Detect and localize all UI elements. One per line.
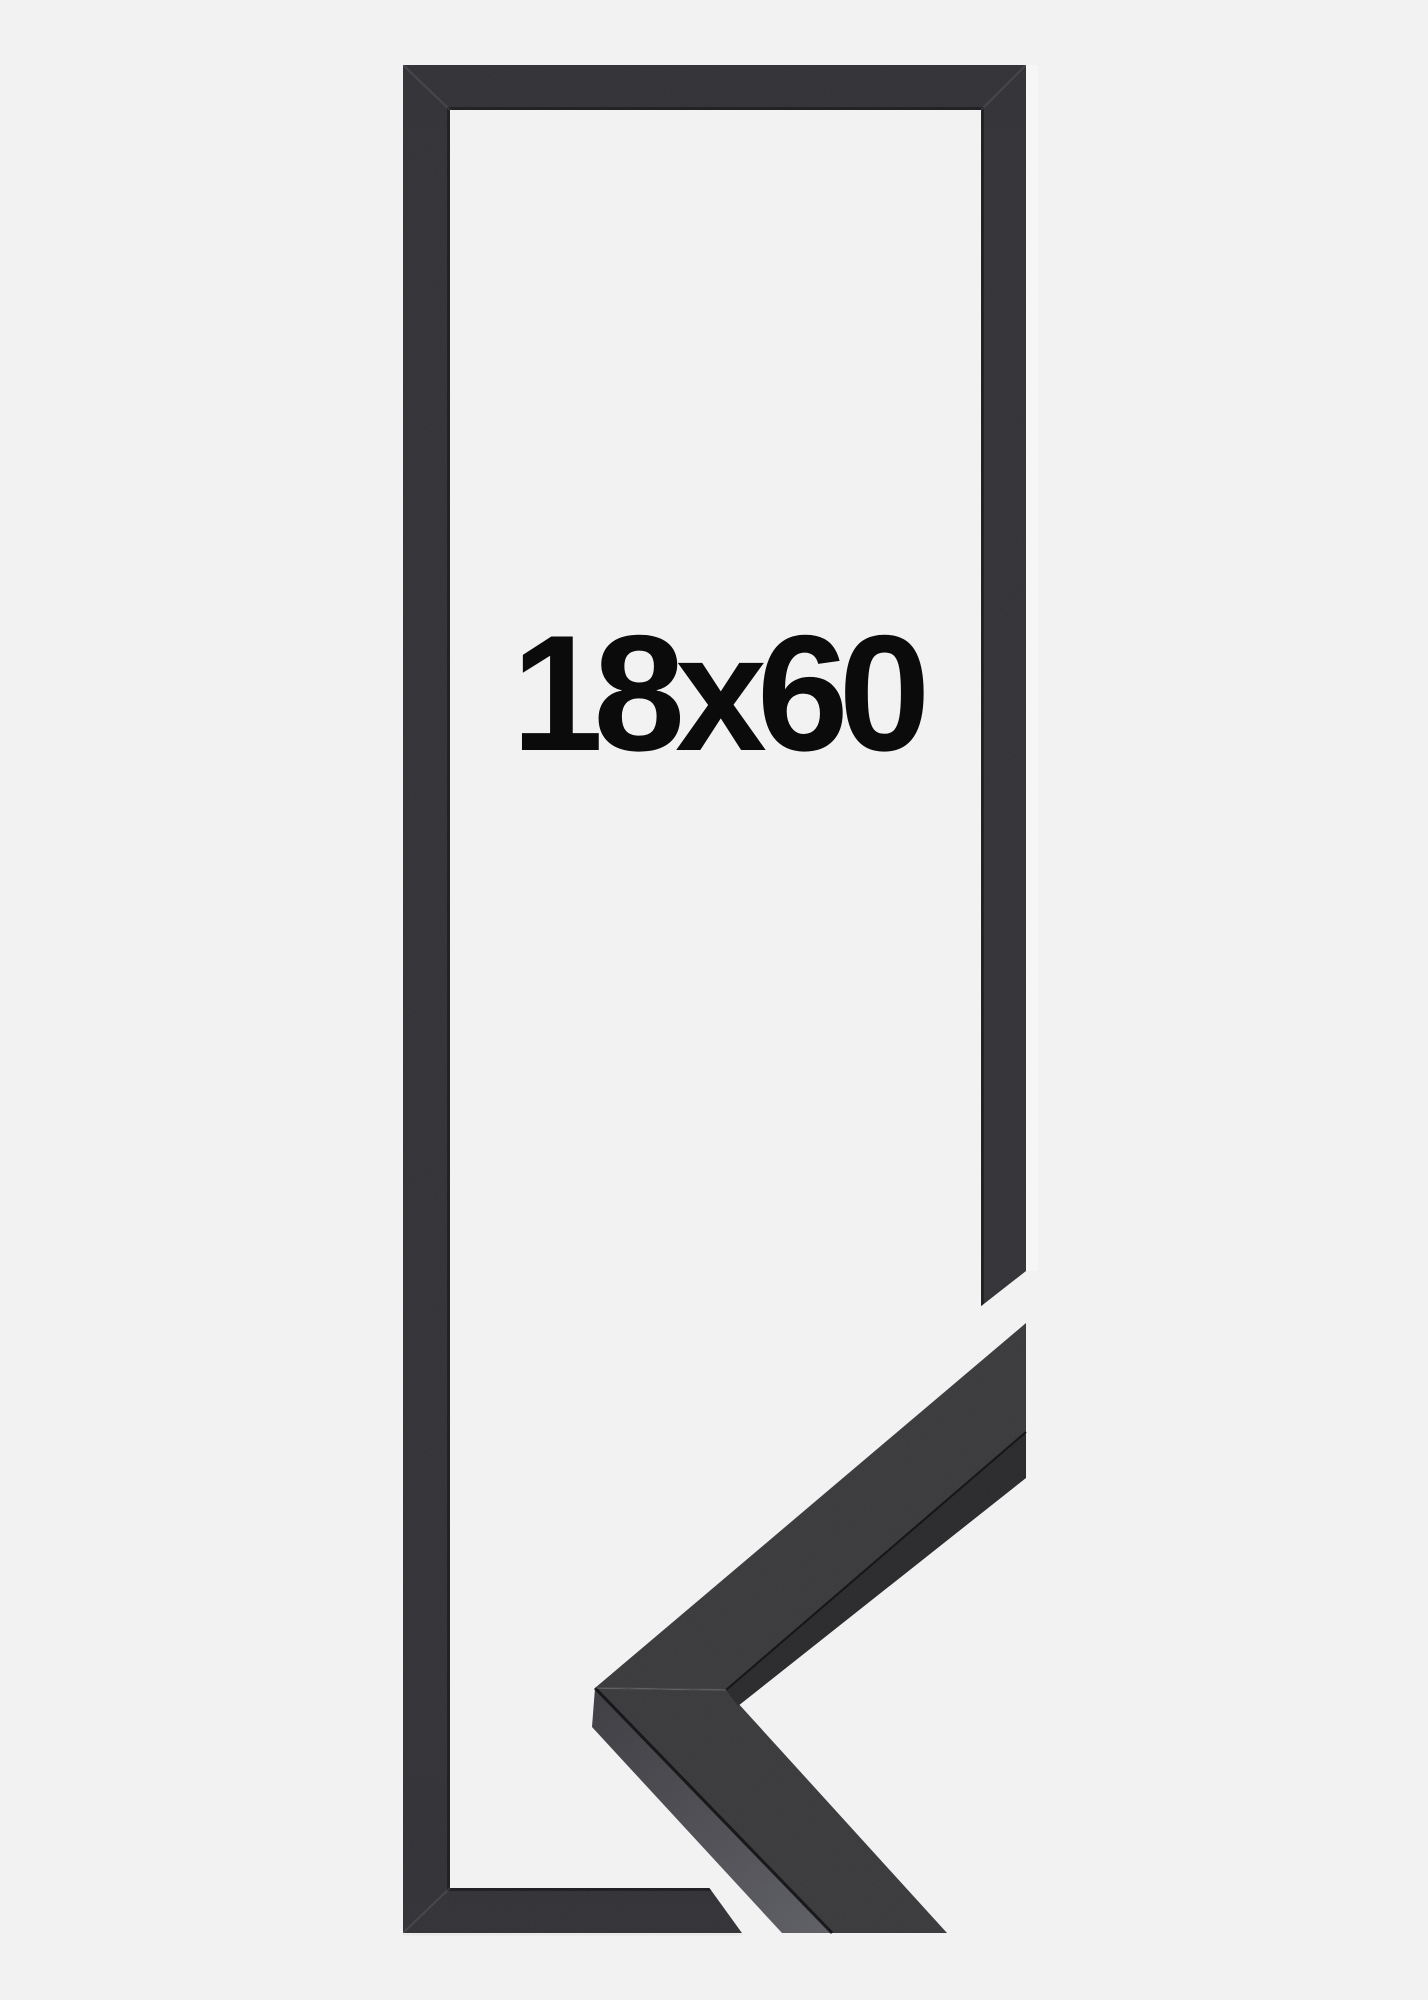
frame-product-photo: 18x60 [0,0,1428,2000]
size-label: 18x60 [512,601,924,785]
product-image: 18x60 [0,0,1428,2000]
photo-edge-glow [1026,65,1038,1271]
